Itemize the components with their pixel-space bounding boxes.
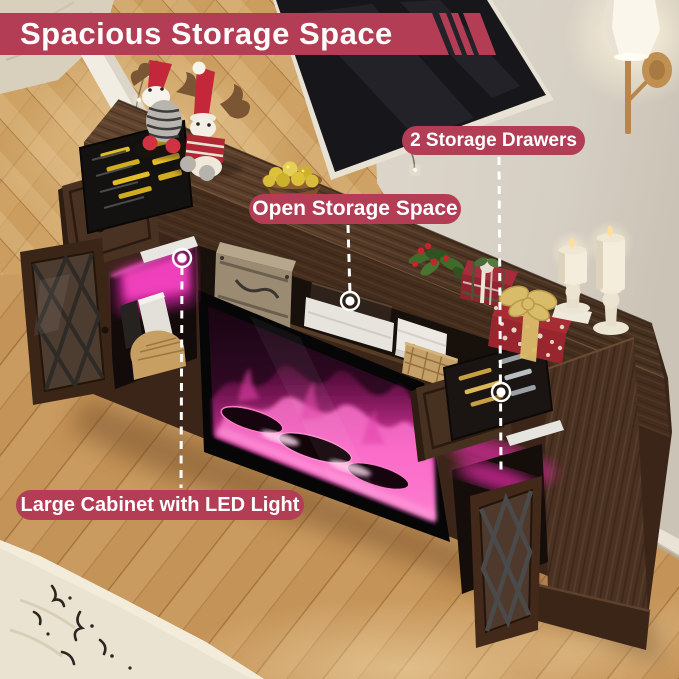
left-glass-door	[20, 238, 115, 405]
sconce-stem	[625, 54, 631, 134]
callout-storage-drawers: 2 Storage Drawers	[402, 126, 585, 155]
door-knob	[102, 327, 109, 334]
callout-large-cabinet-led: Large Cabinet with LED Light	[16, 490, 304, 520]
scene	[0, 0, 679, 679]
candle-flame	[569, 238, 574, 249]
page-title: Spacious Storage Space	[0, 16, 393, 52]
callout-open-storage: Open Storage Space	[249, 194, 461, 224]
connector-dot-drawers	[492, 383, 510, 401]
candle-flame	[607, 226, 612, 237]
connector-dot-cabinet	[173, 249, 191, 267]
connector-dot-open-storage	[341, 292, 359, 310]
right-glass-door	[470, 476, 542, 648]
title-banner: Spacious Storage Space	[0, 13, 449, 55]
right-side-panel	[534, 338, 650, 650]
